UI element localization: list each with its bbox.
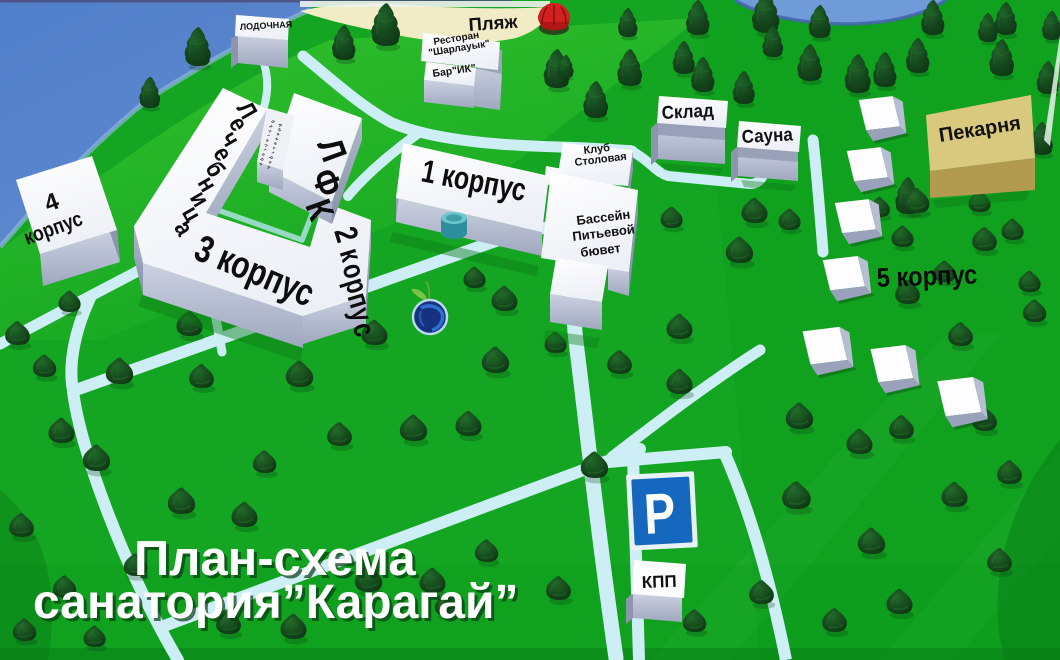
- svg-text:5 корпус: 5 корпус: [876, 260, 978, 293]
- svg-text:P: P: [642, 482, 676, 547]
- svg-text:Склад: Склад: [661, 100, 714, 124]
- svg-text:КПП: КПП: [641, 572, 676, 592]
- svg-text:санатория”Карагай”: санатория”Карагай”: [33, 576, 518, 629]
- svg-text:Сауна: Сауна: [741, 124, 793, 147]
